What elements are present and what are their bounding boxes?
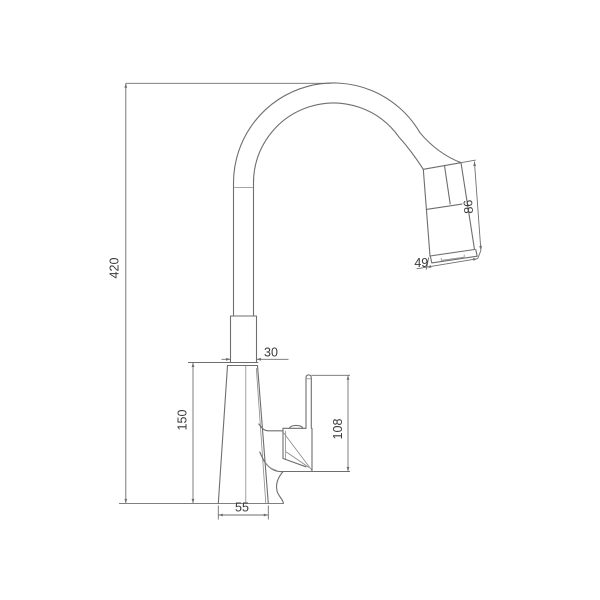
spout-inner-edge <box>254 103 424 316</box>
handle-under-diagonal-1 <box>286 452 309 468</box>
dim-150-arrow-bottom <box>192 499 195 504</box>
dim-86-label: 86 <box>461 199 476 214</box>
dim-30-arrow-right <box>257 358 262 361</box>
body-cone-left-edge <box>218 366 227 504</box>
handle-lever <box>306 375 311 428</box>
dim-55-arrow-left <box>218 514 223 517</box>
body-cone-inner-edge <box>256 368 266 503</box>
dim-49-label: 49 <box>414 256 428 270</box>
base-trim-sweep <box>276 472 283 504</box>
dim-86-extension-top <box>462 160 476 163</box>
spout-outer-edge <box>233 83 461 316</box>
dim-108-arrow-top <box>347 375 350 380</box>
dimension-spray-head-length: 86 <box>461 160 482 259</box>
faucet-technical-drawing: 420 150 108 55 30 <box>0 0 600 600</box>
spray-head-internal-line <box>445 166 451 204</box>
dim-420-label: 420 <box>108 258 122 279</box>
dim-55-arrow-right <box>264 514 269 517</box>
neck-collar <box>231 316 257 363</box>
dimension-overall-height: 420 <box>108 83 332 503</box>
handle-under-diagonal-2 <box>283 432 312 471</box>
dim-30-arrow-left <box>226 358 231 361</box>
dim-108-label: 108 <box>331 419 345 440</box>
dim-108-arrow-bottom <box>347 467 350 472</box>
drawing-canvas: 420 150 108 55 30 <box>0 0 600 600</box>
dim-55-label: 55 <box>235 501 249 515</box>
dimension-handle-height: 108 <box>312 375 351 471</box>
spray-head-divider-line <box>426 204 462 209</box>
dim-150-arrow-top <box>192 363 195 368</box>
aerator-tip <box>430 249 477 263</box>
body-cone-right-edge <box>258 366 269 504</box>
dim-420-arrow-top <box>124 83 127 88</box>
dimension-spray-tip-width: 49 <box>414 256 477 270</box>
dim-150-label: 150 <box>176 410 190 431</box>
dim-420-arrow-bottom <box>124 499 127 504</box>
dimension-neck-width: 30 <box>222 346 289 361</box>
dim-30-label: 30 <box>264 346 278 360</box>
